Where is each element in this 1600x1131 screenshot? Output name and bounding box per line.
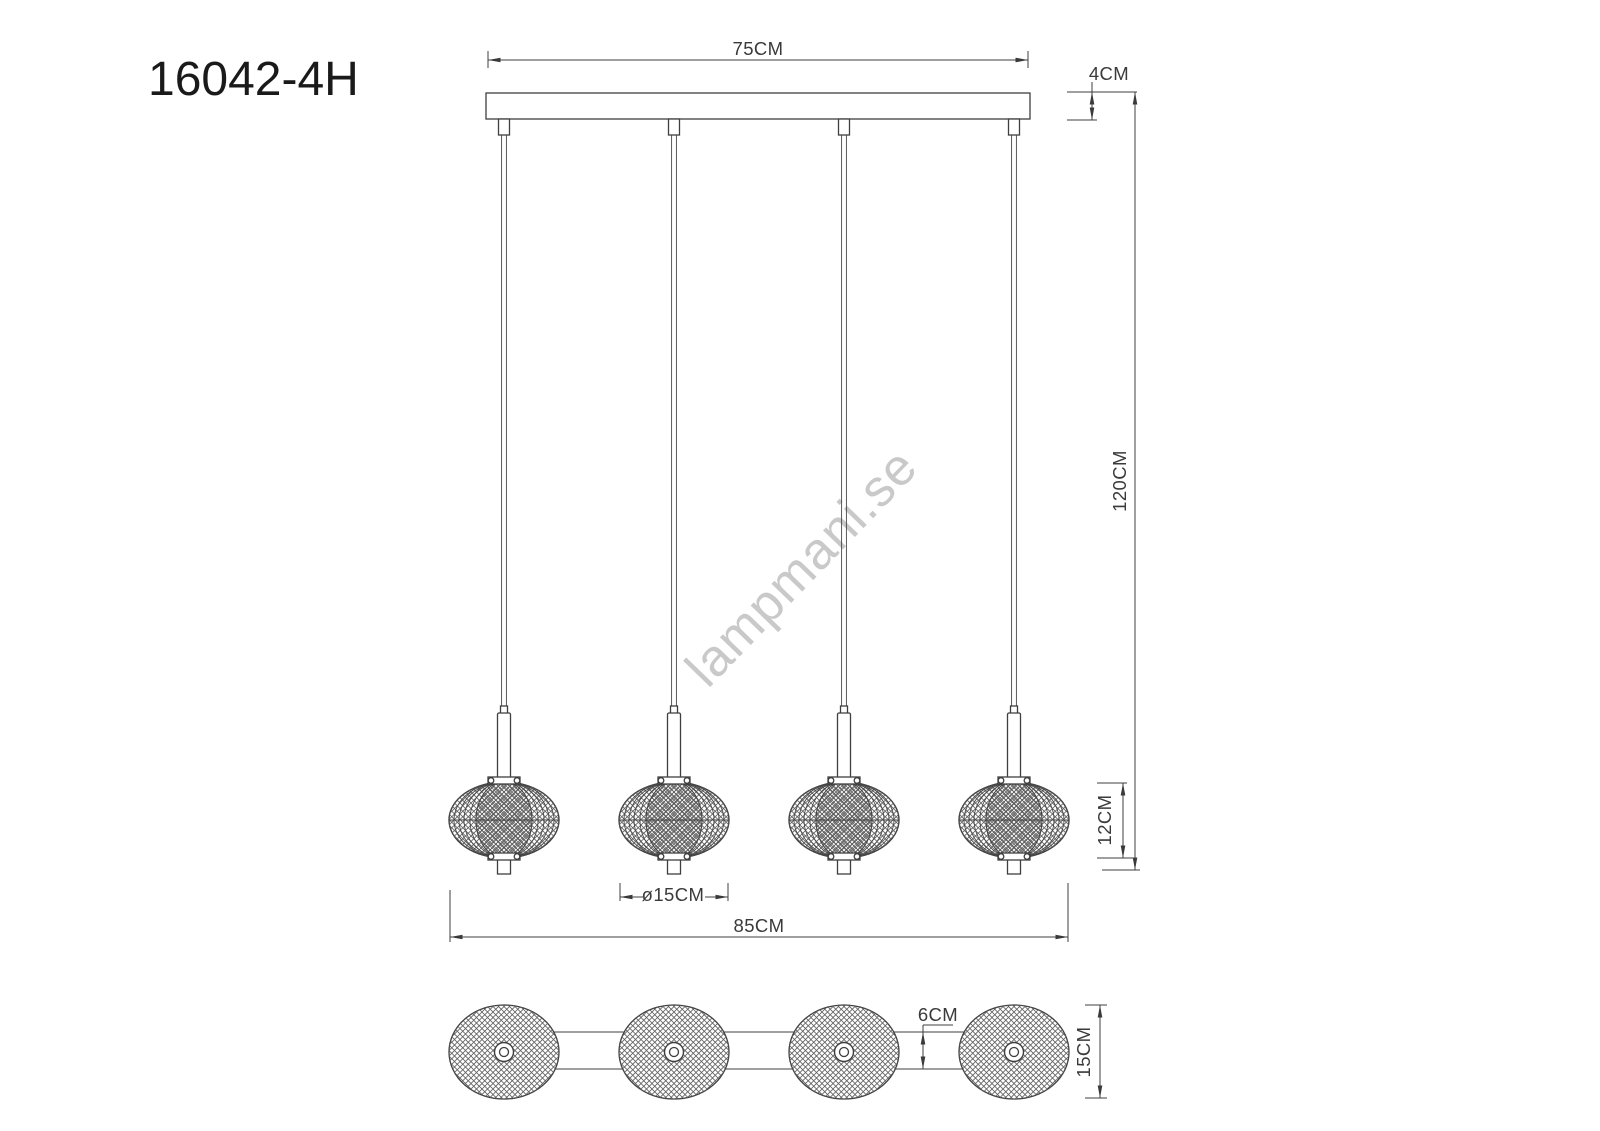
dim-disc-diameter-label: 15CM	[1073, 1027, 1094, 1078]
dim-shade-diameter: ø15CM	[620, 883, 728, 905]
dim-canopy-height: 4CM	[1067, 63, 1137, 120]
dim-canopy-width-label: 75CM	[733, 38, 784, 59]
dim-shade-diameter-label: ø15CM	[642, 884, 705, 905]
dim-rail-depth: 6CM	[918, 1004, 958, 1069]
shade-disc-3	[789, 1005, 899, 1099]
canopy-rail	[504, 1032, 1014, 1069]
dim-suspension-height-label: 120CM	[1109, 450, 1130, 512]
dim-shade-height: 12CM	[1094, 783, 1137, 858]
shade-disc-2	[619, 1005, 729, 1099]
bottom-view: 6CM 15CM	[449, 1004, 1107, 1099]
dim-canopy-width: 75CM	[488, 38, 1028, 68]
dim-overall-width: 85CM	[450, 883, 1068, 942]
model-number: 16042-4H	[148, 53, 359, 106]
pendant-4	[959, 119, 1069, 874]
pendant-2	[619, 119, 729, 874]
dim-rail-depth-label: 6CM	[918, 1004, 958, 1025]
dim-overall-width-label: 85CM	[734, 915, 785, 936]
drawing-page: lampmani.se 16042-4H 75CM 4CM	[0, 0, 1600, 1131]
ceiling-canopy	[486, 93, 1030, 119]
watermark: lampmani.se	[675, 438, 929, 698]
dim-canopy-height-label: 4CM	[1089, 63, 1129, 84]
shade-disc-4	[959, 1005, 1069, 1099]
technical-drawing: lampmani.se 16042-4H 75CM 4CM	[0, 0, 1600, 1131]
pendant-1	[449, 119, 559, 874]
front-view: 75CM 4CM 120CM 12CM	[449, 38, 1140, 942]
dim-shade-height-label: 12CM	[1094, 795, 1115, 846]
dim-suspension-height: 120CM	[1102, 92, 1140, 870]
shade-disc-1	[449, 1005, 559, 1099]
dim-disc-diameter: 15CM	[1073, 1005, 1107, 1098]
